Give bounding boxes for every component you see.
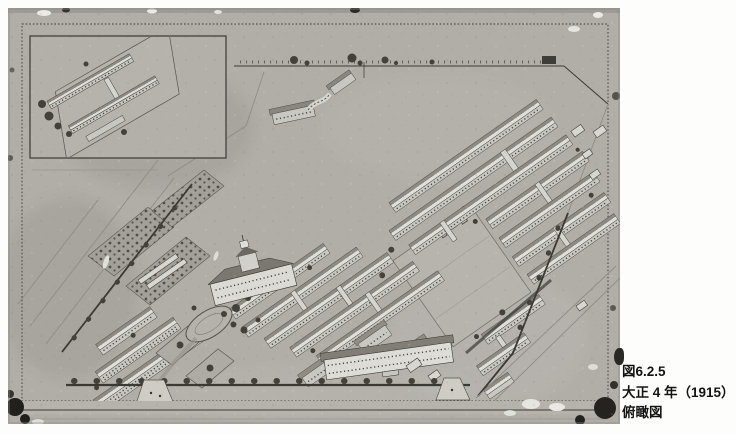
caption-figure-number: 図6.2.5 (622, 362, 736, 383)
caption-year: 大正 4 年（1915） (622, 383, 736, 404)
figure-caption: 図6.2.5 大正 4 年（1915） 俯瞰図 (622, 362, 736, 424)
birdseye-drawing (8, 8, 620, 424)
grain-overlay (8, 8, 620, 424)
caption-type: 俯瞰図 (622, 403, 736, 424)
aerial-photo-plate (8, 8, 620, 424)
book-page: 図6.2.5 大正 4 年（1915） 俯瞰図 (0, 0, 736, 434)
